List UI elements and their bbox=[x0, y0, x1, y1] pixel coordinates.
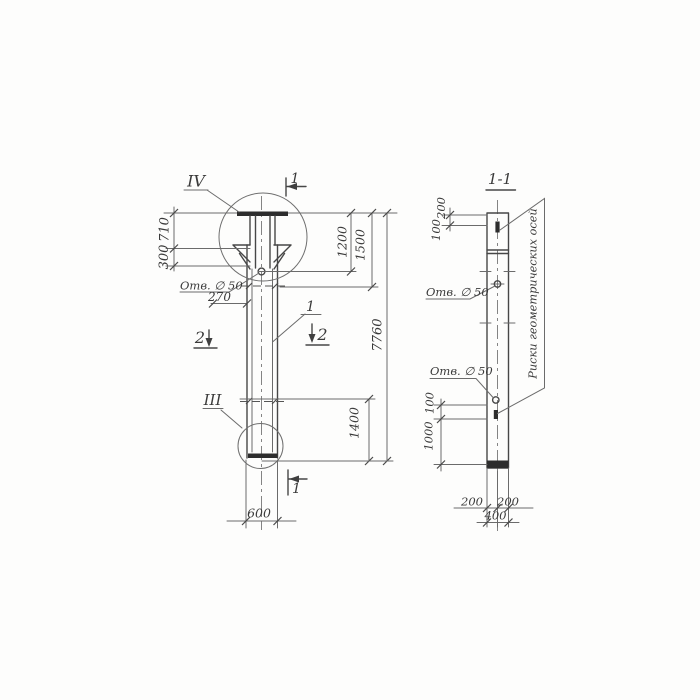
dim-1400: 1400 bbox=[347, 407, 362, 439]
dim-7760: 7760 bbox=[371, 318, 386, 351]
labels: IV 1 2 2 1 III 1 710 300 Отв. ∅ 50 270 1… bbox=[157, 170, 540, 523]
section-marker-1-top: 1 bbox=[291, 171, 300, 187]
dim-200-bottom-left: 200 bbox=[460, 495, 483, 509]
dim-600: 600 bbox=[247, 506, 271, 521]
top-plate bbox=[237, 212, 288, 217]
column-bottom-edge bbox=[248, 454, 278, 459]
dim-200-top: 200 bbox=[434, 197, 448, 220]
section-marker-2-left: 2 bbox=[194, 328, 205, 347]
detail-III-leader bbox=[203, 409, 242, 429]
dim-1500: 1500 bbox=[353, 229, 368, 261]
axes-note: Риски геометрических осей bbox=[527, 208, 540, 379]
engineering-drawing-page: IV 1 2 2 1 III 1 710 300 Отв. ∅ 50 270 1… bbox=[0, 0, 700, 700]
dim-200-bottom-right: 200 bbox=[496, 495, 519, 509]
part-number-label: 1 bbox=[306, 299, 315, 315]
hole-label-section-top: Отв. ∅ 50 bbox=[426, 285, 489, 299]
detail-circle-III bbox=[238, 424, 283, 469]
dim-400: 400 bbox=[484, 509, 507, 523]
hole-leader-section-bottom bbox=[430, 379, 494, 399]
axis-mark-bottom bbox=[494, 410, 498, 419]
detail-marker-III: III bbox=[203, 391, 223, 409]
dim-100-top: 100 bbox=[429, 219, 443, 241]
dim-300: 300 bbox=[157, 245, 172, 270]
hole-label-section-bottom: Отв. ∅ 50 bbox=[430, 364, 493, 378]
right-bracket bbox=[274, 245, 291, 269]
detail-marker-IV: IV bbox=[186, 172, 206, 191]
dim-270: 270 bbox=[207, 290, 231, 304]
dim-1200: 1200 bbox=[335, 226, 350, 258]
dim-100-mid: 100 bbox=[423, 392, 437, 414]
section-marker-2-right: 2 bbox=[316, 325, 327, 344]
section-view-title: 1-1 bbox=[488, 170, 512, 188]
section-bottom-band bbox=[487, 461, 509, 469]
pile-column-drawing: IV 1 2 2 1 III 1 710 300 Отв. ∅ 50 270 1… bbox=[0, 0, 700, 700]
axis-mark-top bbox=[495, 222, 499, 233]
dim-1000: 1000 bbox=[422, 421, 436, 450]
section-marker-1-bottom: 1 bbox=[292, 481, 301, 497]
dim-710: 710 bbox=[158, 217, 173, 242]
detail-IV-leader bbox=[184, 190, 239, 212]
